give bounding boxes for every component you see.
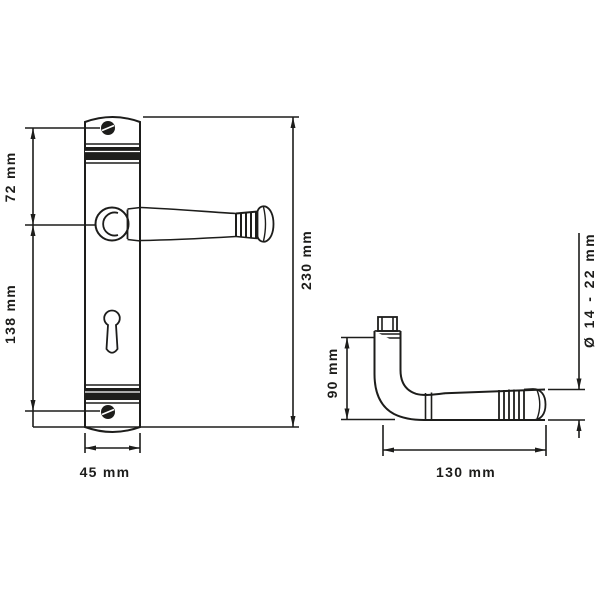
svg-text:138 mm: 138 mm xyxy=(2,284,18,344)
svg-text:230 mm: 230 mm xyxy=(298,230,314,290)
svg-text:Ø 14 - 22 mm: Ø 14 - 22 mm xyxy=(581,232,597,348)
svg-text:130 mm: 130 mm xyxy=(436,464,496,480)
svg-text:45 mm: 45 mm xyxy=(80,464,131,480)
svg-text:72 mm: 72 mm xyxy=(2,152,18,203)
svg-text:90 mm: 90 mm xyxy=(324,348,340,399)
